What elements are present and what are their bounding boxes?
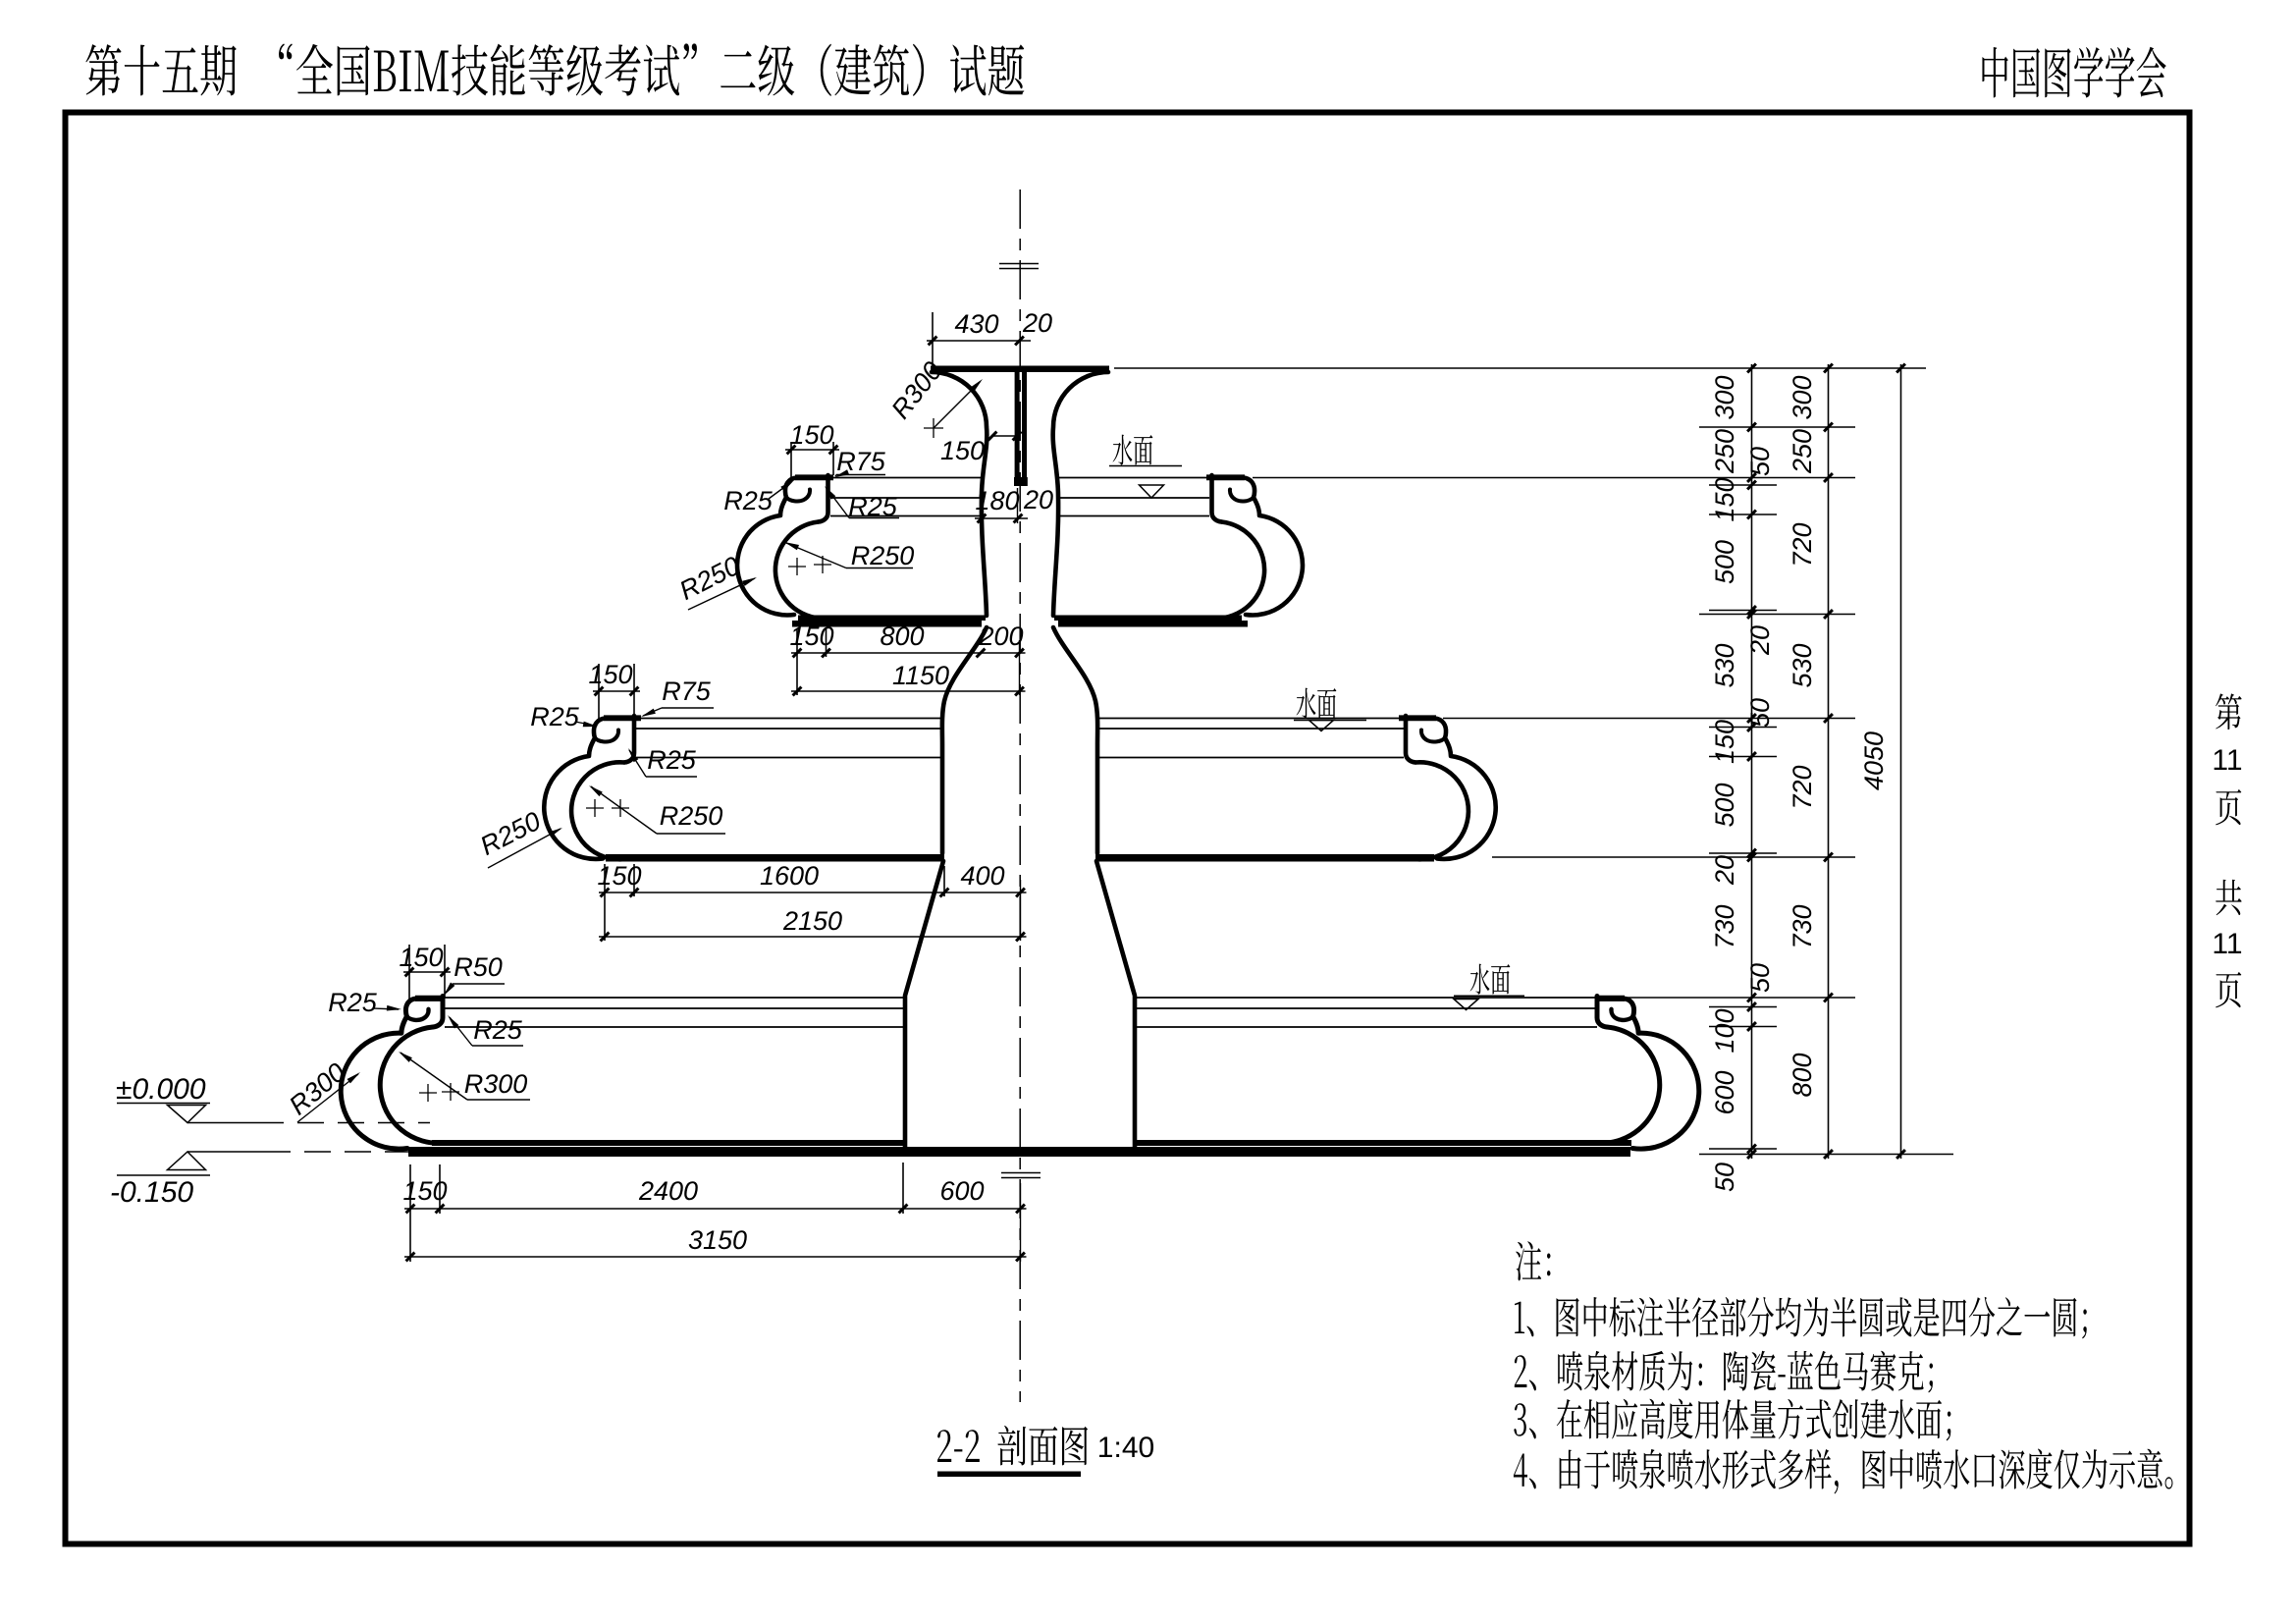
svg-text:4050: 4050 bbox=[1859, 731, 1889, 790]
svg-text:20: 20 bbox=[1022, 308, 1052, 338]
svg-text:600: 600 bbox=[1710, 1070, 1739, 1114]
svg-text:R50: R50 bbox=[454, 952, 503, 982]
svg-text:2150: 2150 bbox=[782, 906, 842, 936]
svg-text:1150: 1150 bbox=[892, 661, 949, 690]
svg-text:530: 530 bbox=[1710, 643, 1739, 687]
svg-text:1600: 1600 bbox=[760, 861, 819, 891]
svg-text:500: 500 bbox=[1710, 540, 1739, 584]
svg-text:R25: R25 bbox=[647, 745, 697, 775]
svg-text:430: 430 bbox=[954, 309, 998, 339]
svg-text:R250: R250 bbox=[660, 801, 723, 831]
svg-text:11: 11 bbox=[2212, 744, 2242, 777]
svg-text:720: 720 bbox=[1788, 765, 1817, 809]
svg-text:800: 800 bbox=[1788, 1053, 1817, 1097]
svg-text:250: 250 bbox=[1788, 429, 1817, 474]
svg-text:20: 20 bbox=[1023, 485, 1053, 514]
svg-text:±0.000: ±0.000 bbox=[116, 1073, 206, 1106]
svg-text:400: 400 bbox=[960, 861, 1004, 891]
svg-text:250: 250 bbox=[1710, 429, 1739, 474]
svg-text:50: 50 bbox=[1745, 698, 1775, 728]
svg-text:150: 150 bbox=[1710, 720, 1739, 764]
svg-text:600: 600 bbox=[939, 1176, 984, 1206]
svg-text:150: 150 bbox=[588, 660, 632, 689]
svg-text:-0.150: -0.150 bbox=[110, 1176, 193, 1209]
svg-text:150: 150 bbox=[940, 436, 985, 465]
svg-text:50: 50 bbox=[1745, 963, 1775, 993]
svg-text:R300: R300 bbox=[464, 1069, 528, 1099]
svg-text:11: 11 bbox=[2212, 928, 2242, 960]
svg-text:R250: R250 bbox=[851, 541, 915, 570]
svg-text:730: 730 bbox=[1788, 904, 1817, 948]
svg-text:50: 50 bbox=[1745, 447, 1775, 476]
svg-text:2400: 2400 bbox=[638, 1176, 698, 1206]
svg-text:150: 150 bbox=[789, 420, 833, 450]
svg-text:200: 200 bbox=[978, 622, 1023, 651]
svg-text:720: 720 bbox=[1788, 522, 1817, 567]
svg-text:300: 300 bbox=[1788, 375, 1817, 419]
svg-text:R75: R75 bbox=[662, 676, 712, 706]
svg-text:R25: R25 bbox=[530, 702, 580, 731]
svg-text:150: 150 bbox=[1710, 477, 1739, 521]
svg-text:530: 530 bbox=[1788, 643, 1817, 687]
svg-text:3150: 3150 bbox=[688, 1225, 747, 1255]
svg-text:150: 150 bbox=[399, 943, 443, 972]
svg-text:100: 100 bbox=[1710, 1008, 1739, 1053]
svg-text:20: 20 bbox=[1710, 855, 1739, 886]
svg-text:500: 500 bbox=[1710, 783, 1739, 827]
svg-text:R25: R25 bbox=[473, 1015, 523, 1045]
svg-text:730: 730 bbox=[1710, 904, 1739, 948]
svg-text:R25: R25 bbox=[723, 486, 774, 515]
svg-text:300: 300 bbox=[1710, 375, 1739, 419]
svg-text:1:40: 1:40 bbox=[1097, 1432, 1154, 1464]
svg-text:50: 50 bbox=[1710, 1163, 1739, 1192]
svg-text:20: 20 bbox=[1745, 625, 1775, 656]
svg-text:R25: R25 bbox=[328, 988, 378, 1017]
svg-text:R25: R25 bbox=[848, 492, 898, 521]
svg-text:180: 180 bbox=[975, 486, 1019, 515]
svg-text:800: 800 bbox=[880, 622, 924, 651]
